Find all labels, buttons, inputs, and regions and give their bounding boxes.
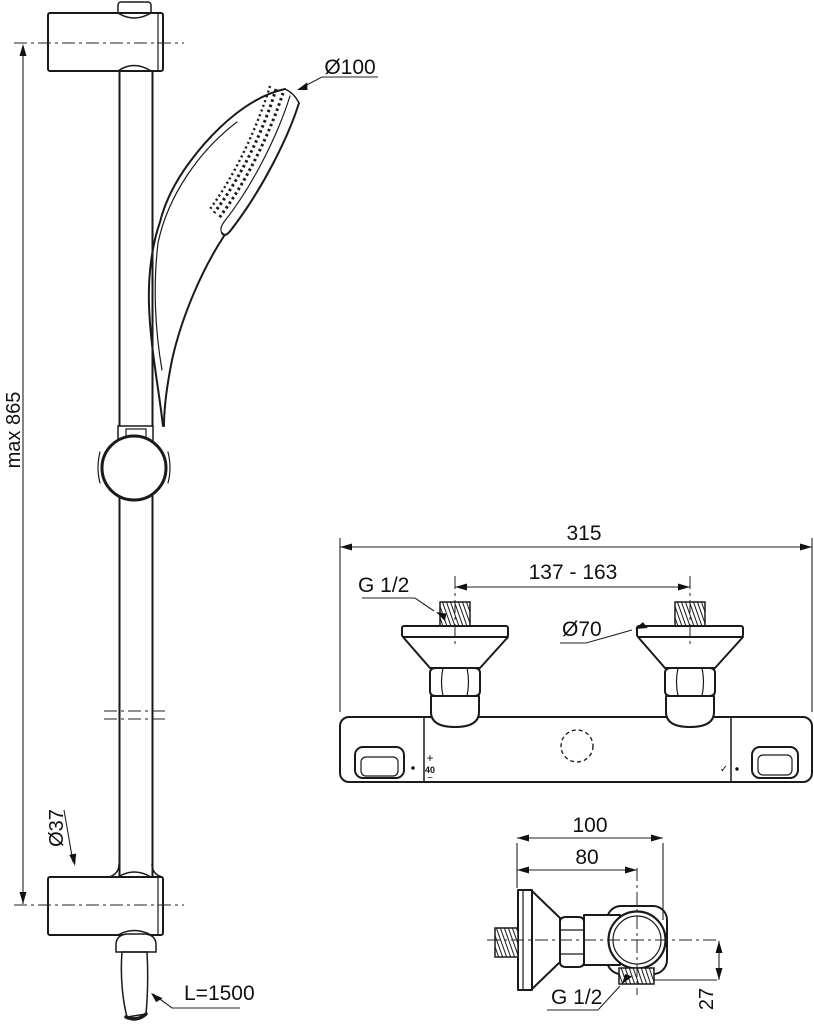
rail-bottom-flare [109,864,162,877]
max-height-label: max 865 [3,392,25,469]
left-inlet-connector [431,696,479,727]
arrowhead-100-right [651,835,663,842]
leader-inlet-thread [362,598,434,611]
dim-overall-width: 315 [340,522,812,712]
temp-plus-mark: + [426,751,433,765]
handset-handle-front-edge [164,236,224,426]
inlet-thread-label: G 1/2 [358,574,409,597]
dim-max-height: max 865 [3,44,27,904]
slider-right-ear [168,452,170,483]
right-escutcheon-assembly [637,601,743,696]
outlet-thread-label: G 1/2 [551,986,602,1009]
spray-nozzle-row-1 [219,93,283,218]
handset-face-outer-edge [222,103,299,235]
arrowhead-down [20,892,27,904]
top-bracket-body [48,13,163,71]
spray-nozzle-row-3 [210,86,270,209]
hose-conical-nut [116,934,156,952]
handset-highlight-line [155,122,237,370]
technical-drawing-page: max 865 Ø100 Ø37 L=1500 [0,0,814,1024]
label-handset-diameter: Ø100 [296,56,378,94]
wall-to-axis-label: 80 [575,846,598,869]
slider-left-ear [98,452,100,483]
hose-cut-end [126,1014,146,1019]
hose-tube [121,952,147,1017]
bottom-bracket-body [48,877,163,935]
label-inlet-thread: G 1/2 [358,574,449,621]
inlet-centers-label: 137 - 163 [529,561,618,584]
outlet-offset-label: 27 [696,988,718,1010]
handset-tip-edge [285,89,299,103]
mixer-side-view: 100 80 27 G 1/2 [484,814,723,1010]
arrowhead-315-right [800,544,812,551]
top-wall-bracket [48,2,163,71]
arrowhead-up [20,44,27,56]
arrowhead-80-left [517,867,529,874]
side-hex-nut [560,917,584,967]
hose-length-label: L=1500 [184,982,255,1005]
slider-knob [102,436,166,500]
temp-minus-mark: − [427,773,433,784]
arrowhead-27-top [716,941,723,953]
arrowhead-bracket [69,854,78,867]
overall-depth-label: 100 [572,814,607,837]
overall-width-label: 315 [566,522,601,545]
flow-index-dot [735,767,738,770]
escutcheon-diameter-label: Ø70 [562,618,602,641]
slide-rail-view: max 865 Ø100 Ø37 L=1500 [3,2,378,1019]
arrowhead-hose [148,991,162,1004]
side-inlet-thread [495,928,518,957]
right-inlet-connector [666,696,714,727]
right-hex-nut [665,668,715,696]
bottom-wall-bracket [48,864,163,935]
arrowhead-315-left [340,544,352,551]
temp-index-dot [411,766,414,769]
arrowhead-137-right [678,584,690,591]
arrowhead-137-left [455,584,467,591]
dim-inlet-centers: 137 - 163 [455,561,690,591]
mixer-body [340,717,812,782]
dim-wall-to-axis: 80 [517,846,637,874]
left-hex-nut [430,668,480,696]
mixer-front-view: + 40 − ✓ 315 137 - 163 G 1/2 Ø70 [340,522,812,784]
arrowhead-100-left [517,835,529,842]
label-bracket-diameter: Ø37 [46,809,78,867]
label-hose-length: L=1500 [148,982,254,1008]
left-escutcheon-assembly [402,601,508,696]
left-handle-button [355,747,404,778]
rail-break-marks [104,711,168,719]
label-escutcheon-diameter: Ø70 [560,618,648,643]
shower-hose [116,934,156,1019]
shower-set-dimension-drawing: max 865 Ø100 Ø37 L=1500 [0,0,814,1024]
flow-mark: ✓ [720,764,728,775]
arrowhead-80-right [625,867,637,874]
handset-diameter-label: Ø100 [324,56,375,79]
arrowhead-27-bottom [716,968,723,980]
slider-holder [98,426,170,500]
hand-shower [149,86,299,426]
